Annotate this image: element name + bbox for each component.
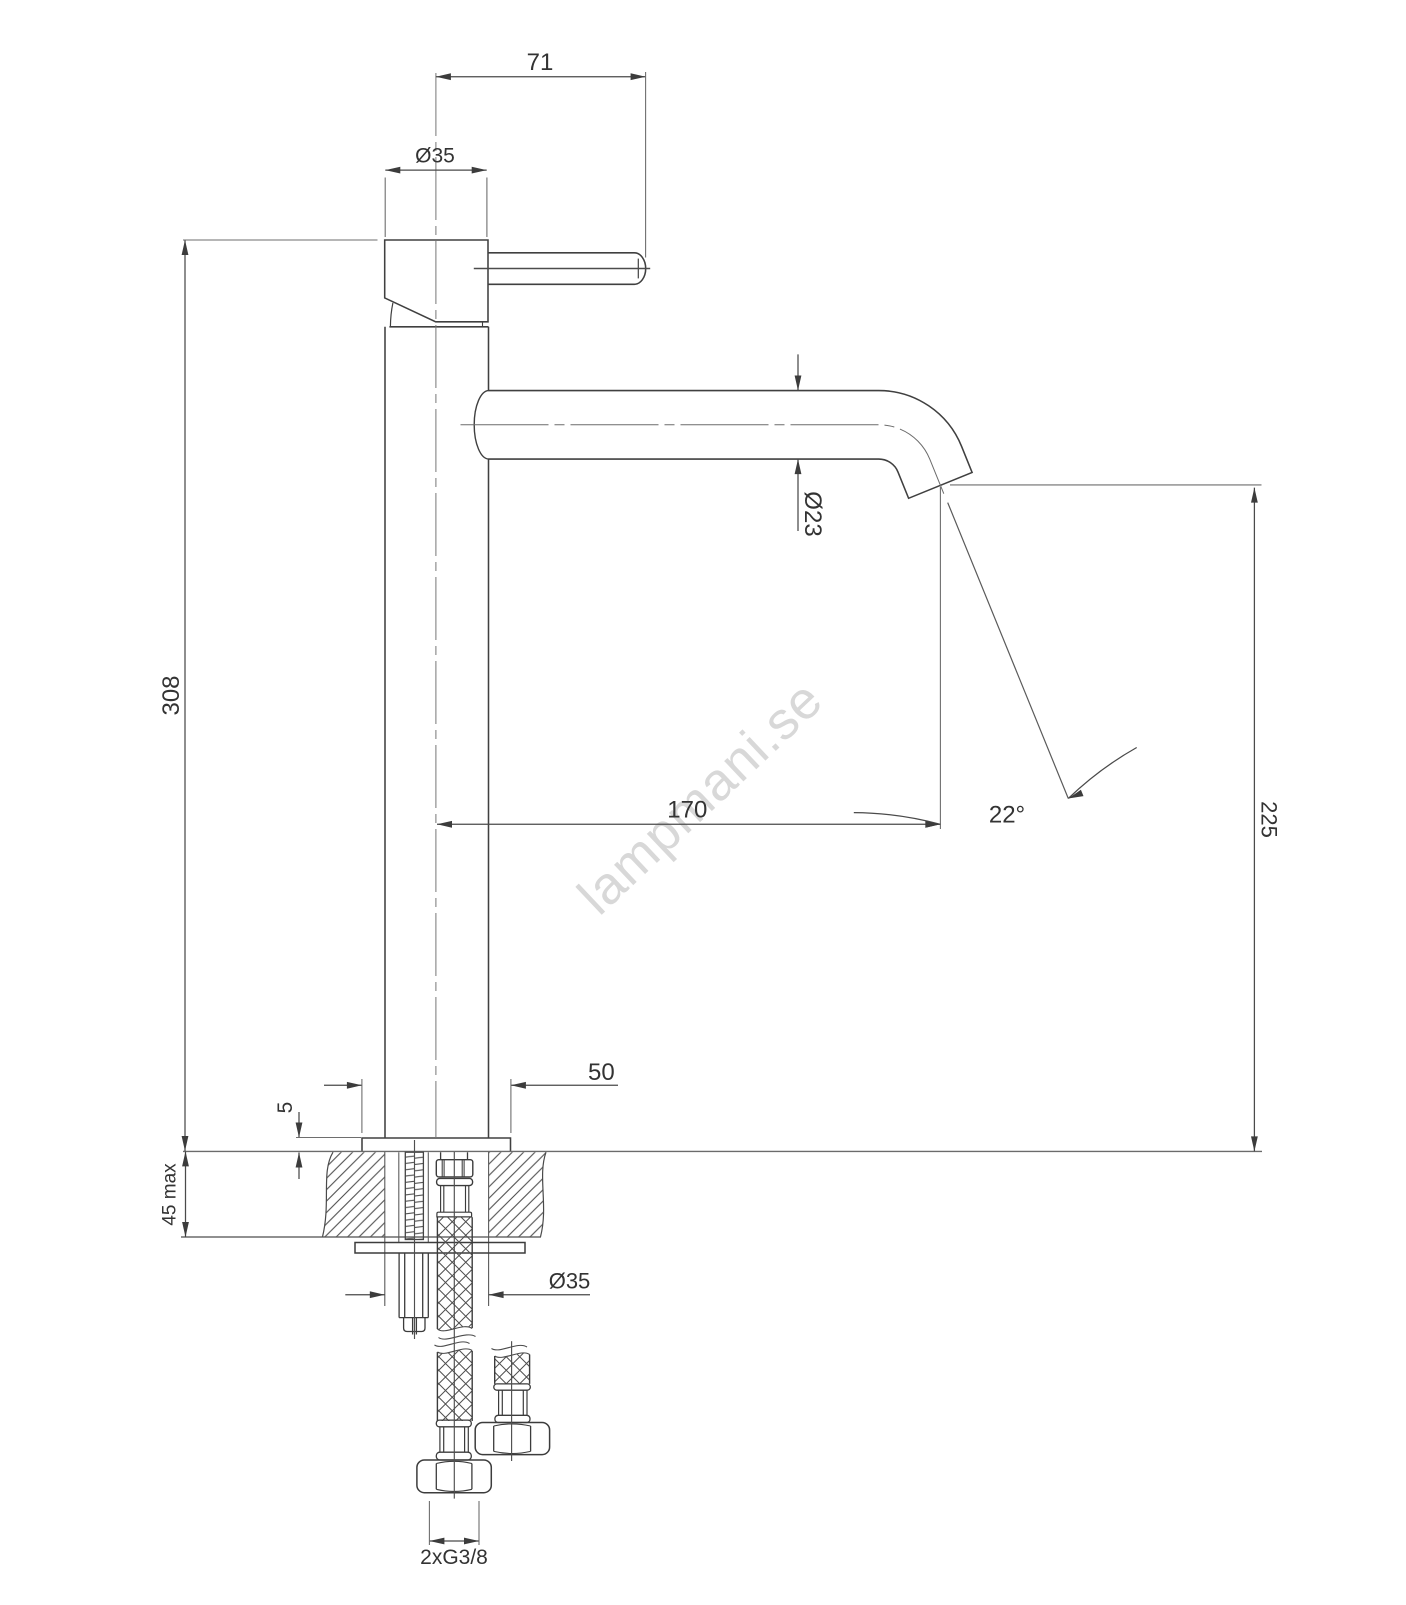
svg-text:170: 170 bbox=[667, 797, 707, 824]
svg-text:22°: 22° bbox=[989, 802, 1025, 829]
svg-text:50: 50 bbox=[588, 1059, 615, 1086]
svg-text:225: 225 bbox=[1256, 801, 1281, 838]
svg-text:Ø23: Ø23 bbox=[799, 491, 826, 536]
svg-text:71: 71 bbox=[527, 49, 554, 76]
svg-text:45 max: 45 max bbox=[160, 1163, 181, 1226]
svg-text:Ø35: Ø35 bbox=[415, 145, 455, 168]
svg-text:2xG3/8: 2xG3/8 bbox=[420, 1546, 488, 1569]
svg-text:Ø35: Ø35 bbox=[549, 1269, 591, 1294]
svg-text:308: 308 bbox=[158, 675, 185, 715]
svg-text:5: 5 bbox=[274, 1102, 297, 1114]
